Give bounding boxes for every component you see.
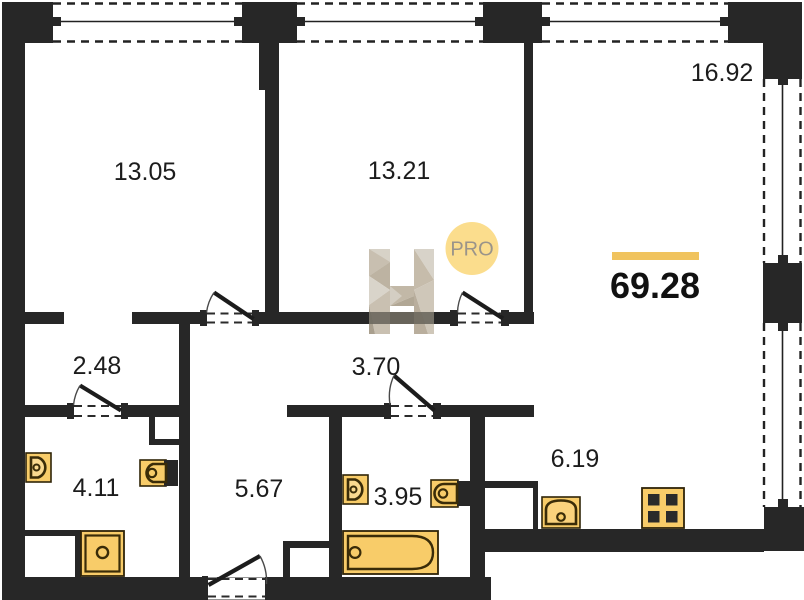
svg-text:PRO: PRO	[450, 239, 493, 261]
svg-text:3.95: 3.95	[374, 483, 423, 511]
svg-text:13.21: 13.21	[368, 157, 431, 185]
svg-text:13.05: 13.05	[114, 158, 177, 186]
svg-text:5.67: 5.67	[235, 475, 284, 503]
svg-text:6.19: 6.19	[551, 445, 600, 473]
svg-text:69.28: 69.28	[610, 265, 700, 306]
svg-text:16.92: 16.92	[691, 59, 754, 87]
svg-text:4.11: 4.11	[73, 474, 120, 502]
svg-text:2.48: 2.48	[73, 352, 122, 380]
svg-text:3.70: 3.70	[352, 353, 401, 381]
